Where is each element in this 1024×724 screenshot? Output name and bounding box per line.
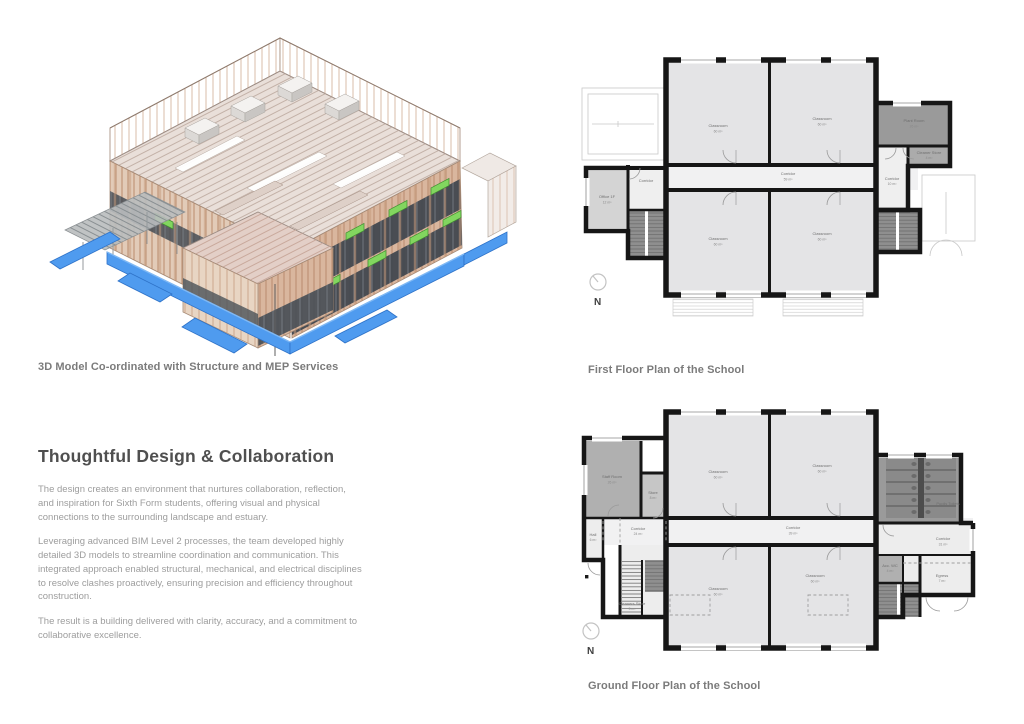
svg-text:31 m²: 31 m² xyxy=(939,543,949,547)
stair-west-rail xyxy=(645,210,648,258)
svg-text:39 m²: 39 m² xyxy=(789,532,799,536)
paragraph-3: The result is a building delivered with … xyxy=(38,615,364,643)
room-label-corridor-east: Corridor xyxy=(885,176,900,181)
office-fill xyxy=(586,171,628,228)
first-floor-caption: First Floor Plan of the School xyxy=(588,364,744,376)
svg-text:12 m²: 12 m² xyxy=(603,201,613,205)
room-label-classroom-tl: Classroom xyxy=(708,123,728,128)
svg-text:27 m²: 27 m² xyxy=(944,507,954,511)
svg-text:4 m²: 4 m² xyxy=(887,569,895,573)
room-label-toilets: Pupils Toilets xyxy=(936,501,959,506)
room-label-classroom-tr: Classroom xyxy=(812,116,832,121)
roof-outline-east xyxy=(922,175,975,256)
north-indicator: N xyxy=(583,623,599,657)
svg-text:6 m²: 6 m² xyxy=(590,538,598,542)
room-label-corridor-west: Corridor xyxy=(631,526,646,531)
room-label-office: Office 1F xyxy=(599,194,616,199)
paragraph-2: Leveraging advanced BIM Level 2 processe… xyxy=(38,535,364,604)
svg-text:60 m²: 60 m² xyxy=(714,593,724,597)
svg-text:24 m²: 24 m² xyxy=(634,532,644,536)
room-label-store: Store xyxy=(648,490,658,495)
svg-text:60 m²: 60 m² xyxy=(818,123,828,127)
svg-text:59 m²: 59 m² xyxy=(784,178,794,182)
room-label-classroom-bl: Classroom xyxy=(708,586,728,591)
stair-west-b xyxy=(645,560,666,592)
svg-text:10 m²: 10 m² xyxy=(888,182,898,186)
room-label-classroom-tl: Classroom xyxy=(708,469,728,474)
svg-text:60 m²: 60 m² xyxy=(714,476,724,480)
roof-outline-west xyxy=(582,88,664,160)
ground-floor-plan: N Classroom 60 m² Classroom 60 m² Classr… xyxy=(578,405,978,670)
room-label-egress: Egress xyxy=(936,573,948,578)
room-label-classroom-br: Classroom xyxy=(805,573,825,578)
corridor-west-fill xyxy=(628,168,666,210)
room-label-classroom-br: Classroom xyxy=(812,231,832,236)
staff-room-fill xyxy=(584,441,641,518)
room-label-cleaner-store: Cleaner Store xyxy=(917,150,942,155)
room-label-corridor-east: Corridor xyxy=(936,536,951,541)
stair-east-rail xyxy=(897,583,900,617)
ground-floor-caption: Ground Floor Plan of the School xyxy=(588,680,760,692)
svg-text:7 m²: 7 m² xyxy=(939,579,947,583)
svg-text:60 m²: 60 m² xyxy=(714,130,724,134)
svg-text:4 m²: 4 m² xyxy=(926,156,934,160)
model-caption: 3D Model Co-ordinated with Structure and… xyxy=(38,361,338,373)
presentation-sheet: 3D Model Co-ordinated with Structure and… xyxy=(0,0,1024,724)
section-heading: Thoughtful Design & Collaboration xyxy=(38,446,364,467)
bim-model-illustration xyxy=(35,16,530,356)
paragraph-1: The design creates an environment that n… xyxy=(38,483,364,524)
right-extension xyxy=(462,153,516,237)
text-block: Thoughtful Design & Collaboration The de… xyxy=(38,446,364,654)
svg-text:60 m²: 60 m² xyxy=(714,243,724,247)
room-label-classroom-tr: Classroom xyxy=(812,463,832,468)
canopy-south xyxy=(673,299,863,316)
room-label-hall: Hall xyxy=(590,532,597,537)
svg-text:60 m²: 60 m² xyxy=(811,580,821,584)
north-label: N xyxy=(587,646,594,657)
room-label-corridor-west: Corridor xyxy=(639,178,654,183)
room-label-classroom-bl: Classroom xyxy=(708,236,728,241)
survey-dot xyxy=(585,575,588,578)
room-label-corridor: Corridor xyxy=(781,171,796,176)
svg-text:5 m²: 5 m² xyxy=(629,607,637,611)
room-label-corridor-center: Corridor xyxy=(786,525,801,530)
room-label-cleaners-store: Cleaners Store xyxy=(619,601,646,606)
north-label: N xyxy=(594,297,601,308)
svg-text:60 m²: 60 m² xyxy=(818,238,828,242)
svg-text:8 m²: 8 m² xyxy=(650,496,658,500)
room-label-plant-room: Plant Room xyxy=(904,118,926,123)
svg-text:60 m²: 60 m² xyxy=(818,470,828,474)
stair-east-rail xyxy=(896,210,899,252)
room-label-acc-wc: Acc. WC xyxy=(882,563,898,568)
svg-text:26 m²: 26 m² xyxy=(910,125,920,129)
north-indicator: N xyxy=(590,274,606,308)
room-label-staff-room: Staff Room xyxy=(602,474,623,479)
first-floor-plan: N Classroom 60 m² Classroom 60 m² Classr… xyxy=(578,42,978,352)
svg-text:26 m²: 26 m² xyxy=(608,481,618,485)
